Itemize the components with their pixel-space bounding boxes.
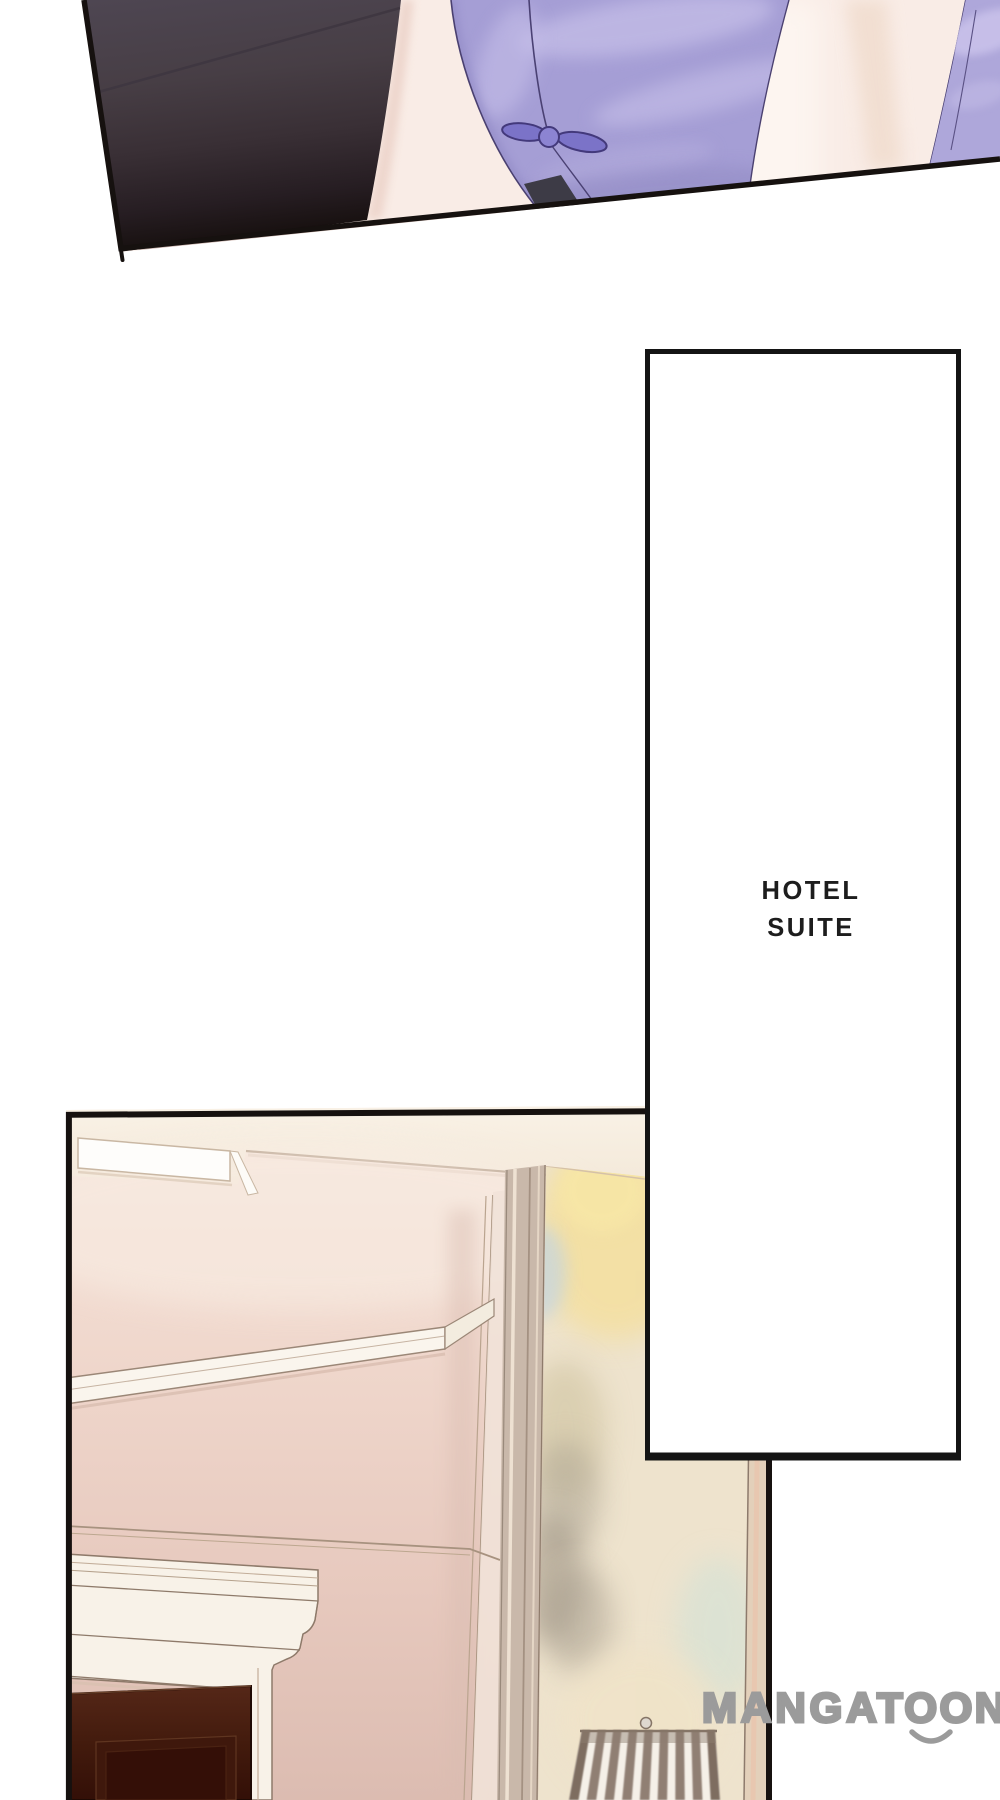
svg-text:TOON: TOON [877, 1684, 1000, 1731]
svg-text:SUITE: SUITE [767, 914, 855, 942]
svg-text:MANGA: MANGA [702, 1684, 881, 1731]
svg-text:HOTEL: HOTEL [762, 877, 861, 905]
